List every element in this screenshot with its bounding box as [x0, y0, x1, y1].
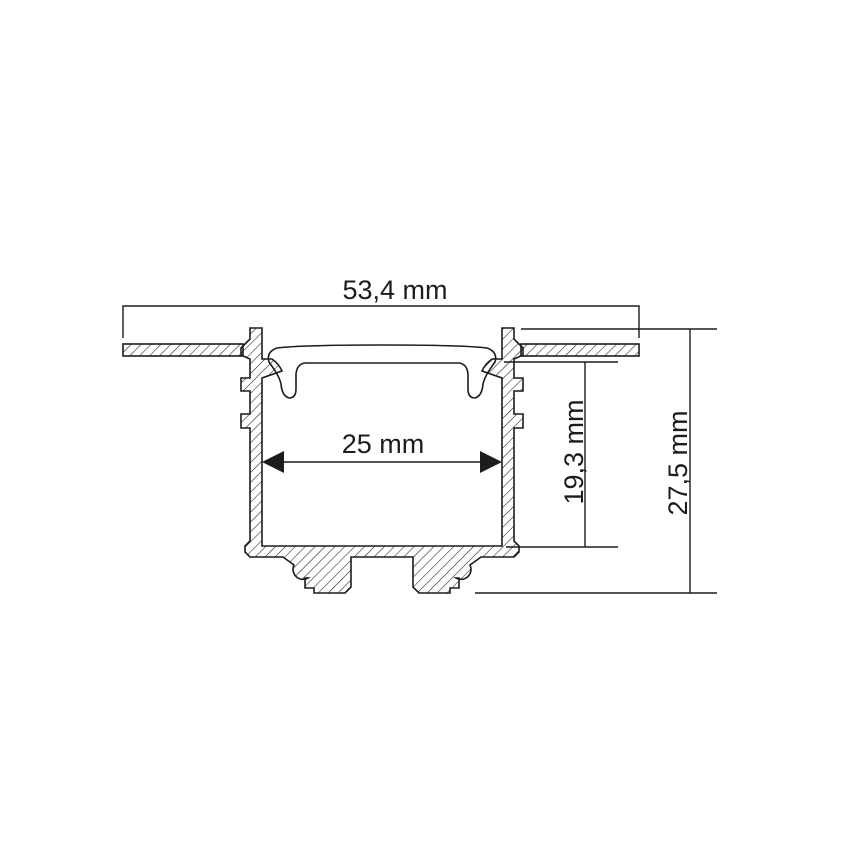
diffuser-cover	[268, 345, 495, 398]
ceiling-panel-left	[123, 344, 243, 356]
drawing-canvas: 53,4 mm 25 mm 19,3 mm 27,5 mm	[0, 0, 868, 868]
dim-inner-width-arrow-left	[262, 451, 284, 473]
dim-outer-width-label: 53,4 mm	[342, 275, 447, 305]
ceiling-panel-right	[521, 344, 639, 356]
dim-total-height-label: 27,5 mm	[663, 410, 693, 515]
dim-outer-width-line	[123, 306, 639, 338]
dim-inner-depth-label: 19,3 mm	[559, 399, 589, 504]
dim-inner-width-arrow-right	[480, 451, 502, 473]
dim-inner-width: 25 mm	[262, 429, 502, 473]
profile-cross-section-drawing: 53,4 mm 25 mm 19,3 mm 27,5 mm	[0, 0, 868, 868]
dim-inner-width-label: 25 mm	[342, 429, 425, 459]
